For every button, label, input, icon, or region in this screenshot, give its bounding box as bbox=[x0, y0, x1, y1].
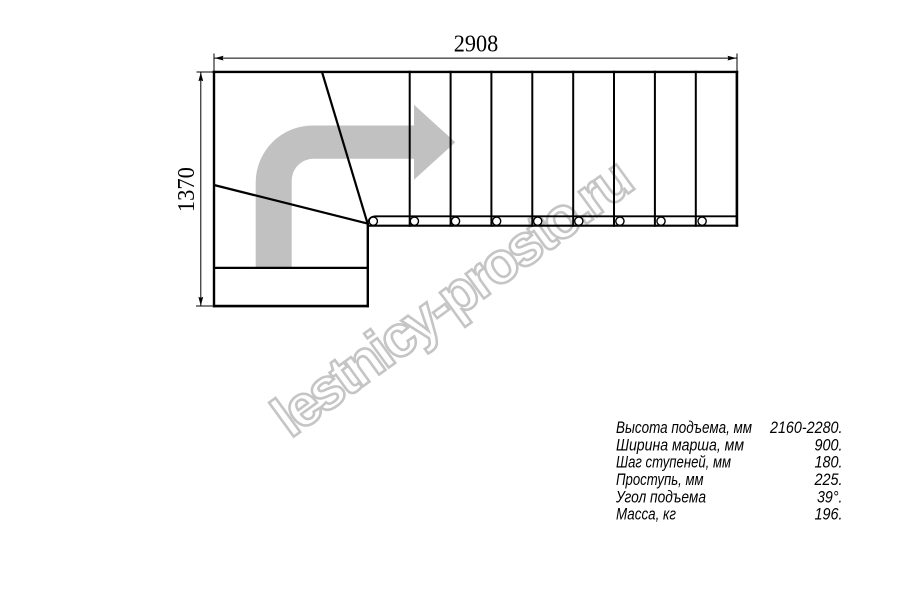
svg-text:196.: 196. bbox=[815, 506, 843, 524]
svg-text:225.: 225. bbox=[814, 471, 843, 489]
svg-text:Угол подъема: Угол подъема bbox=[615, 488, 706, 506]
svg-text:Масса, кг: Масса, кг bbox=[616, 506, 676, 524]
svg-text:39°.: 39°. bbox=[817, 488, 843, 506]
svg-text:1370: 1370 bbox=[173, 167, 200, 212]
svg-text:2908: 2908 bbox=[454, 31, 499, 58]
svg-text:Высота подъема, мм: Высота подъема, мм bbox=[616, 419, 752, 437]
svg-text:Шаг ступеней, мм: Шаг ступеней, мм bbox=[616, 454, 731, 472]
svg-text:900.: 900. bbox=[815, 436, 843, 454]
svg-text:180.: 180. bbox=[815, 454, 843, 472]
svg-text:Ширина марша, мм: Ширина марша, мм bbox=[616, 436, 744, 454]
svg-text:2160-2280.: 2160-2280. bbox=[769, 419, 842, 437]
svg-text:Проступь, мм: Проступь, мм bbox=[616, 471, 704, 489]
